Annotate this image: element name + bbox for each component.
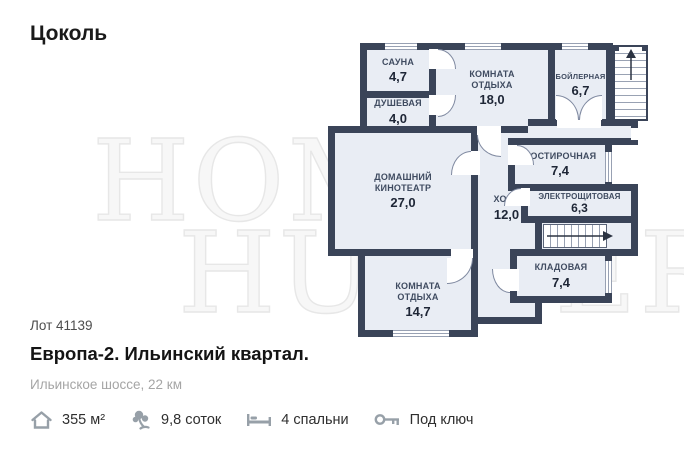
feature-label: 4 спальни bbox=[281, 412, 348, 428]
room-label: КЛАДОВАЯ bbox=[535, 262, 588, 273]
room-sauna: САУНА 4,7 bbox=[360, 43, 436, 98]
room-area: 27,0 bbox=[390, 195, 415, 210]
stairs-up-arrow-icon bbox=[621, 48, 641, 82]
feature-label: Под ключ bbox=[410, 412, 474, 428]
room-area: 14,7 bbox=[405, 304, 430, 319]
feature-finish: Под ключ bbox=[374, 412, 474, 428]
floor-plan: САУНА 4,7 ДУШЕВАЯ 4,0 КОМНАТА ОТДЫХА 18,… bbox=[325, 33, 670, 351]
feature-bedrooms: 4 спальни bbox=[246, 411, 348, 429]
door-gap bbox=[508, 145, 517, 165]
door-gap bbox=[451, 249, 473, 258]
feature-label: 9,8 соток bbox=[161, 412, 221, 428]
room-area: 4,7 bbox=[389, 69, 407, 84]
window bbox=[385, 43, 417, 50]
room-label: ДУШЕВАЯ bbox=[374, 98, 422, 109]
feature-land-area: 9,8 соток bbox=[130, 409, 221, 430]
room-label: ЭЛЕКТРОЩИТОВАЯ bbox=[538, 192, 620, 202]
wall-corner bbox=[642, 45, 648, 51]
bed-icon bbox=[246, 411, 272, 429]
room-label: БОЙЛЕРНАЯ bbox=[556, 72, 606, 81]
listing-subtitle: Ильинское шоссе, 22 км bbox=[30, 377, 182, 392]
room-area: 6,7 bbox=[571, 83, 589, 98]
land-icon bbox=[130, 409, 152, 430]
feature-house-area: 355 м² bbox=[30, 410, 105, 430]
room-home-theater: ДОМАШНИЙ КИНОТЕАТР 27,0 bbox=[328, 126, 478, 256]
door-gap bbox=[521, 188, 530, 206]
room-area: 12,0 bbox=[494, 207, 519, 222]
listing-title: Европа-2. Ильинский квартал. bbox=[30, 343, 309, 365]
door-gap bbox=[429, 49, 438, 69]
room-label: КОМНАТА ОТДЫХА bbox=[457, 69, 527, 91]
room-storage: КЛАДОВАЯ 7,4 bbox=[510, 249, 612, 303]
stairs-right-arrow-icon bbox=[545, 229, 617, 243]
listing-card: HOME HUNTER Цоколь САУНА 4,7 ДУШЕВАЯ 4,0… bbox=[0, 0, 684, 455]
house-icon bbox=[30, 410, 53, 430]
room-area: 4,0 bbox=[389, 111, 407, 126]
window bbox=[562, 43, 588, 50]
lot-number: Лот 41139 bbox=[30, 318, 93, 333]
floor-title: Цоколь bbox=[30, 22, 107, 46]
window bbox=[605, 152, 612, 182]
room-label: ПОСТИРОЧНАЯ bbox=[524, 151, 597, 162]
door-gap bbox=[510, 269, 519, 291]
door-gap bbox=[557, 119, 601, 128]
room-label: ДОМАШНИЙ КИНОТЕАТР bbox=[359, 172, 447, 194]
room-area: 7,4 bbox=[551, 163, 569, 178]
window bbox=[605, 261, 612, 293]
door-gap bbox=[631, 128, 640, 140]
room-area: 7,4 bbox=[552, 275, 570, 290]
wall-corner bbox=[613, 45, 619, 51]
room-label: САУНА bbox=[382, 57, 414, 68]
room-area: 6,3 bbox=[571, 201, 588, 215]
window bbox=[393, 330, 449, 337]
key-icon bbox=[374, 412, 401, 427]
door-gap bbox=[471, 151, 480, 175]
window bbox=[465, 43, 501, 50]
room-area: 18,0 bbox=[479, 92, 504, 107]
door-gap bbox=[429, 95, 438, 115]
door-gap bbox=[477, 126, 501, 135]
feature-label: 355 м² bbox=[62, 412, 105, 428]
features-row: 355 м² 9,8 соток 4 спальни bbox=[30, 409, 498, 430]
room-label: КОМНАТА ОТДЫХА bbox=[383, 281, 453, 303]
